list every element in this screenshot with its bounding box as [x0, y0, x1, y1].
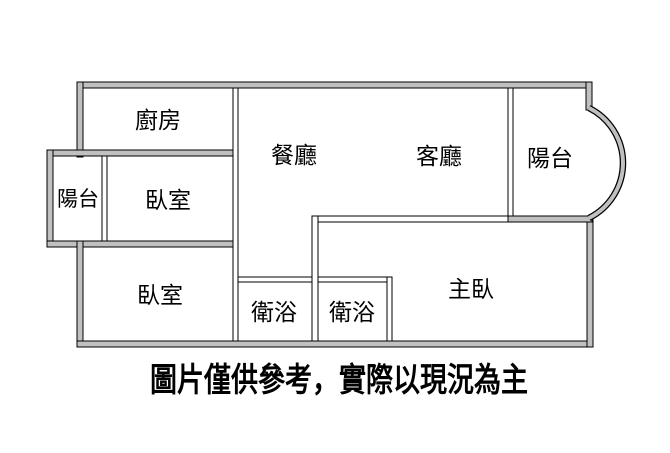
room-label-master-bedroom: 主臥	[448, 277, 494, 303]
room-label-bathroom-right: 衛浴	[329, 300, 375, 326]
wall-right-lower	[587, 216, 593, 347]
bay-window-curve-outline	[589, 108, 623, 218]
wall-top	[77, 82, 592, 88]
floor-plan-canvas: 廚房 餐廳 客廳 陽台 陽台 臥室 臥室 衛浴 衛浴 主臥 圖片僅供參考，實際以…	[0, 0, 670, 453]
wall-balcony-bedroom-divider	[102, 156, 107, 241]
wall-balcony2-bottom	[508, 216, 592, 222]
floor-plan-image: 廚房 餐廳 客廳 陽台 陽台 臥室 臥室 衛浴 衛浴 主臥 圖片僅供參考，實際以…	[0, 0, 670, 453]
wall-master-top	[312, 216, 508, 222]
wall-left-lower	[77, 241, 83, 347]
wall-bottom	[77, 341, 593, 347]
room-label-kitchen: 廚房	[135, 108, 181, 134]
wall-balcony-bottom	[47, 241, 238, 247]
room-label-bathroom-left: 衛浴	[251, 300, 297, 326]
wall-living-balcony-divider	[508, 88, 513, 216]
wall-kitchen-bottom	[47, 150, 238, 156]
room-label-bedroom-lower: 臥室	[137, 283, 183, 309]
wall-master-left	[312, 216, 318, 341]
wall-kitchen-dining-divider	[233, 88, 238, 341]
wall-left-upper	[77, 82, 83, 157]
caption-text: 圖片僅供參考，實際以現況為主	[150, 360, 528, 399]
room-label-dining: 餐廳	[271, 143, 317, 169]
room-label-balcony-right: 陽台	[527, 146, 573, 172]
room-label-bedroom-upper: 臥室	[145, 188, 191, 214]
room-label-living: 客廳	[416, 144, 462, 170]
room-label-balcony-left: 陽台	[57, 187, 99, 211]
wall-balcony-left	[47, 150, 53, 247]
wall-bathroom-right	[387, 277, 392, 341]
